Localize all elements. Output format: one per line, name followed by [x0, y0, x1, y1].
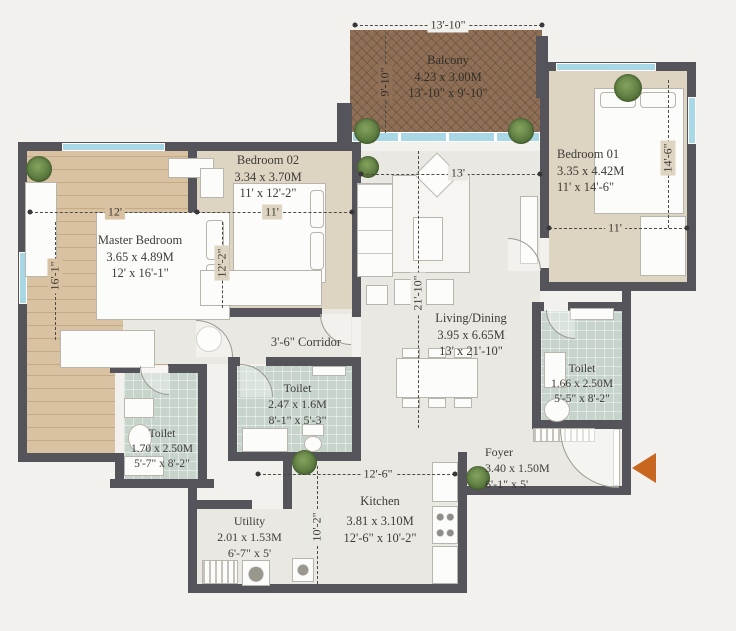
dimension-endpoint: [28, 210, 33, 215]
pillow: [640, 92, 676, 108]
dimension-label: 13': [448, 166, 468, 181]
vanity-sink: [124, 398, 154, 418]
room-dim-m: 1.66 x 2.50M: [536, 377, 628, 392]
room-name: Living/Dining: [396, 310, 546, 327]
room-name: Toilet: [116, 427, 208, 442]
wall-segment: [188, 584, 467, 593]
room-dim-ft: 12' x 16'-1": [66, 265, 214, 282]
room-dim-m: 3.95 x 6.65M: [396, 327, 546, 344]
room-name: Kitchen: [340, 493, 420, 510]
entry-arrow-icon: [632, 453, 656, 483]
window-icon: [556, 63, 656, 71]
room-label-master-bedroom: Master Bedroom 3.65 x 4.89M 12' x 16'-1": [66, 232, 214, 282]
room-name: Master Bedroom: [66, 232, 214, 249]
room-label-toilet-left: Toilet 1.70 x 2.50M 5'-7" x 8'-2": [116, 427, 208, 473]
room-label-toilet-right: Toilet 1.66 x 2.50M 5'-5" x 8'-2": [536, 362, 628, 408]
hob: [292, 558, 314, 582]
floor-plan: 13'-10" 9'-10" 12' 16'-1" 11' 12'-2" 13'…: [0, 0, 736, 631]
wall-segment: [540, 282, 696, 291]
room-dim-ft: 5'-5" x 8'-2": [536, 392, 628, 407]
dresser: [60, 330, 155, 368]
dimension-endpoint: [547, 226, 552, 231]
room-label-bedroom-02: Bedroom 02 3.34 x 3.70M 11' x 12'-2": [203, 152, 333, 202]
sofa: [357, 183, 393, 277]
pillow: [310, 232, 324, 270]
dimension-label: 12': [105, 205, 125, 220]
room-name: Bedroom 01: [557, 146, 681, 163]
room-dim-ft: 5'-7" x 8'-2": [116, 457, 208, 472]
kitchen-counter: [432, 546, 458, 584]
dining-chair: [454, 398, 472, 408]
room-name: Foyer: [485, 445, 585, 461]
room-dim-ft: 13' x 21'-10": [396, 343, 546, 360]
dimension-endpoint: [540, 23, 545, 28]
room-dim-m: 2.01 x 1.53M: [197, 530, 302, 546]
ottoman: [426, 279, 454, 305]
room-name: 3'-6" Corridor: [245, 334, 367, 351]
room-dim-ft: 6'-1" x 5': [485, 477, 585, 493]
room-label-bedroom-01: Bedroom 01 3.35 x 4.42M 11' x 14'-6": [552, 146, 681, 196]
room-label-utility: Utility 2.01 x 1.53M 6'-7" x 5': [197, 514, 302, 561]
plant-icon: [614, 74, 642, 102]
vanity-sink: [242, 428, 288, 452]
wall-segment: [266, 357, 361, 366]
room-name: Balcony: [368, 52, 528, 69]
room-label-kitchen-dims: 3.81 x 3.10M 12'-6" x 10'-2": [305, 513, 455, 546]
dimension-endpoint: [359, 172, 364, 177]
wall-segment: [188, 479, 197, 509]
room-label-toilet-middle: Toilet 2.47 x 1.6M 8'-1" x 5'-3": [240, 381, 355, 428]
dimension-endpoint: [195, 210, 200, 215]
wall-segment: [283, 452, 292, 509]
dimension-endpoint: [256, 472, 261, 477]
room-label-foyer: Foyer 3.40 x 1.50M 6'-1" x 5': [480, 445, 585, 492]
shelf: [312, 366, 346, 376]
room-dim-ft: 6'-7" x 5': [197, 546, 302, 562]
dimension-endpoint: [685, 226, 690, 231]
room-label-living-dining: Living/Dining 3.95 x 6.65M 13' x 21'-10": [396, 310, 546, 360]
dimension-label: 11': [262, 205, 282, 220]
room-dim-ft: 11' x 14'-6": [557, 179, 681, 196]
master-closet-floor: [27, 365, 115, 454]
dimension-endpoint: [538, 172, 543, 177]
wardrobe: [640, 216, 686, 276]
dimension-label: 13'-10": [427, 18, 468, 33]
room-dim-ft: 8'-1" x 5'-3": [240, 413, 355, 429]
washing-machine: [242, 560, 270, 586]
dining-chair: [428, 398, 446, 408]
plant-icon: [354, 118, 380, 144]
room-dim-m: 2.47 x 1.6M: [240, 397, 355, 413]
fridge: [432, 462, 458, 502]
room-dim-m: 4.23 x 3.00M: [368, 69, 528, 86]
room-dim-m: 3.40 x 1.50M: [485, 461, 585, 477]
room-dim-m: 1.70 x 2.50M: [116, 442, 208, 457]
dimension-endpoint: [453, 472, 458, 477]
wall-segment: [18, 453, 124, 462]
wall-segment: [540, 62, 549, 142]
plant-icon: [292, 450, 317, 475]
shelf: [570, 308, 614, 320]
dimension-endpoint: [350, 210, 355, 215]
wall-segment: [228, 357, 237, 461]
room-label-balcony: Balcony 4.23 x 3.00M 13'-10" x 9'-10": [368, 52, 528, 102]
window-icon: [688, 97, 696, 144]
utility-sink: [202, 560, 238, 584]
room-name: Utility: [197, 514, 302, 530]
room-name: Toilet: [240, 381, 355, 397]
dimension-label: 12'-6": [360, 467, 395, 482]
wall-segment: [188, 500, 252, 509]
room-dim-m: 3.34 x 3.70M: [203, 169, 333, 186]
wall-segment: [337, 103, 352, 143]
room-dim-m: 3.65 x 4.89M: [66, 249, 214, 266]
plant-icon: [26, 156, 52, 182]
dimension-label: 11': [605, 221, 625, 236]
plant-icon: [508, 118, 534, 144]
dimension-label: 21'-10": [411, 272, 426, 313]
window-icon: [62, 143, 165, 151]
room-dim-ft: 13'-10" x 9'-10": [368, 85, 528, 102]
side-table: [366, 285, 388, 305]
dimension-endpoint: [353, 23, 358, 28]
dimension-label: 16'-1": [48, 258, 63, 293]
dimension-line: [258, 474, 455, 475]
room-dim-ft: 12'-6" x 10'-2": [305, 530, 455, 547]
dining-table: [396, 358, 478, 398]
wall-segment: [540, 142, 549, 238]
room-dim-m: 3.35 x 4.42M: [557, 163, 681, 180]
room-name: Toilet: [536, 362, 628, 377]
wall-segment: [168, 364, 207, 373]
room-label-kitchen: Kitchen: [340, 493, 420, 510]
room-name: Bedroom 02: [203, 152, 333, 169]
room-dim-ft: 11' x 12'-2": [203, 185, 333, 202]
wall-segment: [352, 430, 361, 461]
wall-segment: [188, 500, 197, 593]
dimension-label: 12'-2": [215, 245, 230, 280]
corridor-label: 3'-6" Corridor: [245, 334, 367, 351]
room-dim-m: 3.81 x 3.10M: [305, 513, 455, 530]
